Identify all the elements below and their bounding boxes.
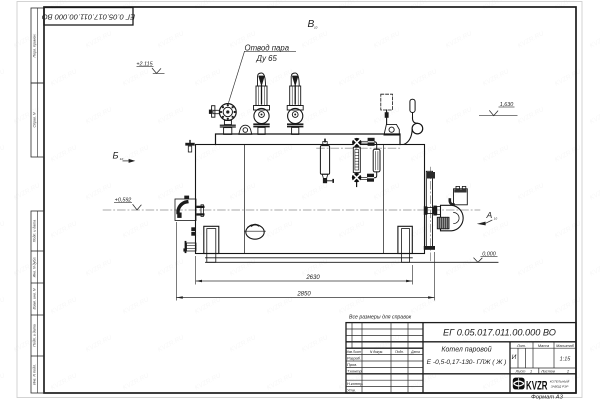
svg-text:0,000: 0,000 (482, 251, 496, 257)
svg-text:Подп. и дата: Подп. и дата (33, 220, 37, 243)
svg-text:10: 10 (120, 157, 124, 161)
svg-text:Листов: Листов (540, 369, 555, 373)
svg-text:10: 10 (314, 26, 318, 30)
svg-text:КОТЕЛЬНЫЙ: КОТЕЛЬНЫЙ (550, 380, 570, 384)
svg-text:1,630: 1,630 (500, 102, 514, 108)
svg-text:Лист: Лист (352, 350, 362, 354)
svg-text:Лит.: Лит. (516, 344, 526, 348)
svg-text:Н.контр.: Н.контр. (347, 381, 363, 386)
svg-text:Т.контр.: Т.контр. (347, 368, 363, 373)
svg-text:1:15: 1:15 (560, 357, 572, 363)
svg-text:Перв. примен.: Перв. примен. (33, 34, 37, 58)
svg-text:ЕГ 0.05.017.011.00.000 ВО: ЕГ 0.05.017.011.00.000 ВО (443, 327, 556, 337)
svg-text:Формат А3: Формат А3 (531, 394, 563, 400)
svg-text:Дата: Дата (410, 350, 420, 354)
svg-text:N докум.: N докум. (370, 350, 383, 354)
svg-text:ЕГ 0.05.017.011.00.000 ВО: ЕГ 0.05.017.011.00.000 ВО (42, 13, 135, 22)
svg-text:Ду 65: Ду 65 (256, 54, 278, 63)
svg-text:1: 1 (530, 369, 532, 373)
svg-text:Масса: Масса (538, 344, 549, 348)
svg-text:А: А (486, 210, 493, 220)
svg-text:Котел паровой: Котел паровой (441, 345, 491, 353)
svg-text:Справ. N: Справ. N (33, 112, 37, 127)
svg-text:Е -0,5-0,17-130- ГЛЖ ( Ж ): Е -0,5-0,17-130- ГЛЖ ( Ж ) (427, 359, 507, 366)
svg-text:Инв. N подл.: Инв. N подл. (33, 364, 37, 385)
svg-text:2850: 2850 (296, 292, 311, 298)
svg-text:2630: 2630 (305, 275, 320, 281)
svg-text:Утв.: Утв. (347, 388, 356, 393)
svg-text:Взам. инв. N: Взам. инв. N (33, 288, 37, 309)
svg-text:KVZR: KVZR (526, 378, 548, 392)
svg-text:Б: Б (113, 151, 119, 161)
svg-text:Все размеры для справок: Все размеры для справок (349, 315, 412, 321)
svg-text:10: 10 (494, 217, 498, 221)
svg-text:Пров.: Пров. (347, 362, 357, 367)
svg-text:+0,592: +0,592 (115, 197, 132, 203)
svg-text:Масштаб: Масштаб (556, 344, 575, 348)
svg-text:Разраб.: Разраб. (347, 356, 361, 361)
svg-text:Подп.: Подп. (395, 350, 404, 354)
svg-text:И: И (512, 354, 517, 361)
svg-text:Лист: Лист (515, 369, 526, 373)
svg-text:Изм: Изм (346, 350, 353, 354)
svg-text:+2,115: +2,115 (136, 61, 153, 67)
svg-text:ЗАВОД РЭР: ЗАВОД РЭР (551, 385, 570, 389)
svg-text:Инв. N дубл.: Инв. N дубл. (33, 257, 37, 278)
svg-text:Подп. и дата: Подп. и дата (33, 324, 37, 347)
